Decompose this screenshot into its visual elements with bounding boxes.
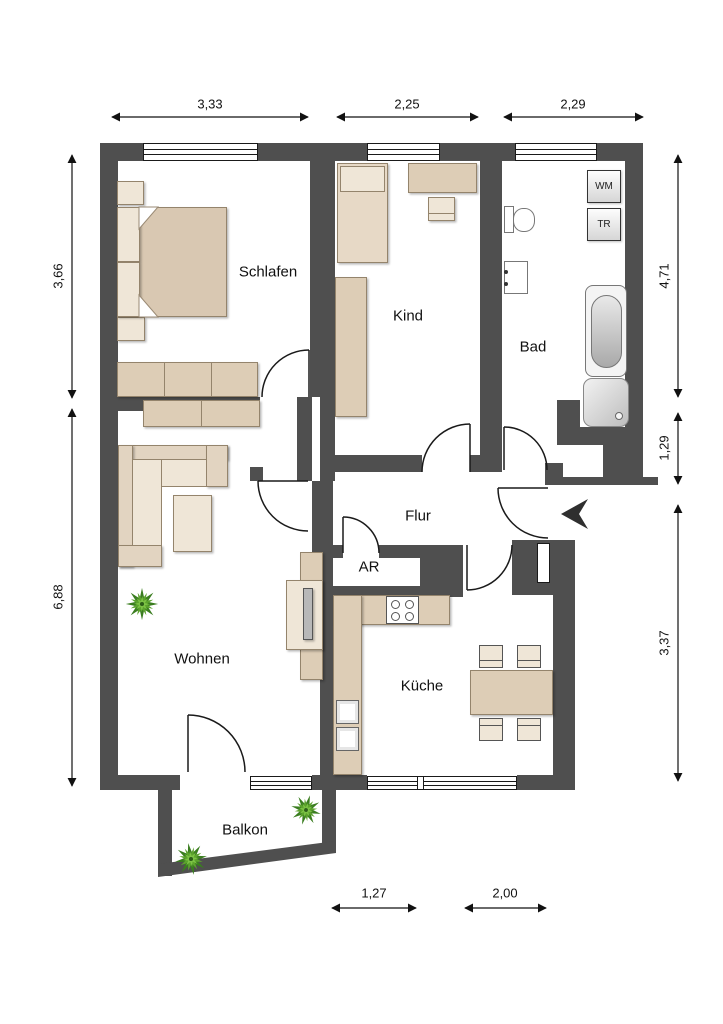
wall-segment	[603, 445, 643, 482]
wall-segment	[480, 161, 502, 472]
bathtub-basin	[591, 295, 622, 368]
wardrobe	[335, 277, 367, 417]
bed-pillow	[340, 166, 385, 192]
double-bed	[139, 207, 227, 317]
balcony-wall	[158, 790, 172, 876]
floor-plan: WM TR Schlafen Kind Bad Flur AR Wohnen K…	[0, 0, 723, 1024]
plant-icon	[172, 840, 209, 877]
stove	[386, 596, 419, 624]
wall-segment	[100, 161, 118, 790]
wall-segment	[557, 400, 580, 445]
window-mullion	[417, 776, 424, 790]
window-schlafen	[143, 143, 258, 161]
chair	[479, 645, 503, 668]
wardrobe-divider	[211, 363, 212, 396]
balcony-door-sill	[250, 776, 312, 790]
bathroom-sink	[504, 261, 528, 294]
dimension-label: 6,88	[51, 584, 66, 609]
window-kueche	[367, 776, 517, 790]
dryer: TR	[587, 208, 621, 241]
window-bad	[515, 143, 597, 161]
wall-segment	[545, 463, 563, 485]
door-wohnen	[258, 481, 308, 531]
plant-icon	[287, 791, 324, 828]
door-schlafen	[262, 350, 309, 397]
desk	[408, 163, 477, 193]
stove-burner	[391, 612, 400, 621]
stove-burner	[391, 600, 400, 609]
kitchen-sink	[336, 727, 359, 751]
room-label-wohnen: Wohnen	[174, 651, 230, 668]
plant-icon	[126, 588, 158, 620]
room-label-flur: Flur	[405, 508, 431, 525]
chair	[517, 645, 541, 668]
dining-table	[470, 670, 553, 715]
kitchen-sink	[336, 700, 359, 724]
bed-pillow	[117, 262, 140, 317]
room-label-kind: Kind	[393, 308, 423, 325]
desk-chair	[428, 197, 455, 221]
door-kind	[422, 424, 470, 472]
dimension-label: 2,29	[560, 97, 585, 112]
wall-segment	[333, 545, 343, 558]
nightstand	[117, 181, 144, 205]
wall-segment	[335, 455, 422, 472]
wall-segment	[470, 455, 502, 472]
chair-back	[429, 213, 454, 214]
stove-burner	[405, 600, 414, 609]
nightstand	[117, 317, 145, 341]
tv-screen	[303, 588, 313, 640]
wall-segment	[250, 467, 263, 481]
dimension-label: 4,71	[657, 263, 672, 288]
window-kind	[367, 143, 440, 161]
room-label-bad: Bad	[520, 339, 547, 356]
toilet-bowl	[513, 208, 535, 232]
dimension-label: 2,00	[492, 886, 517, 901]
washing-machine: WM	[587, 170, 621, 203]
wall-segment	[580, 427, 643, 445]
dimension-label: 3,66	[51, 263, 66, 288]
dimension-label: 3,37	[657, 630, 672, 655]
shower-drain	[615, 412, 623, 420]
door-ar	[343, 517, 379, 553]
wall-segment	[100, 775, 180, 790]
wall-segment	[310, 161, 335, 397]
wall-segment	[312, 775, 367, 790]
entrance-sidelight	[537, 543, 550, 583]
bed-pillow	[117, 207, 140, 262]
faucet-dot	[504, 282, 508, 286]
faucet-dot	[504, 270, 508, 274]
chair	[479, 718, 503, 741]
balcony-wall	[322, 790, 336, 852]
door-bad	[504, 427, 547, 470]
balcony-slanted-wall	[158, 841, 336, 877]
stove-burner	[405, 612, 414, 621]
door-balkon	[188, 715, 245, 772]
wall-segment	[553, 595, 575, 775]
dimension-label: 3,33	[197, 97, 222, 112]
wardrobe-divider	[164, 363, 165, 396]
wall-segment	[320, 397, 335, 481]
door-entrance	[498, 488, 548, 538]
dimension-label: 2,25	[394, 97, 419, 112]
room-label-balkon: Balkon	[222, 822, 268, 839]
entrance-arrow-icon	[561, 499, 588, 529]
dimension-label: 1,29	[657, 435, 672, 460]
sideboard-divider	[201, 401, 202, 426]
chair	[517, 718, 541, 741]
sofa-seat	[132, 459, 162, 546]
dryer-label: TR	[597, 219, 610, 230]
dimension-label: 1,27	[361, 886, 386, 901]
door-kueche	[467, 545, 512, 590]
wardrobe	[117, 362, 258, 397]
washing-machine-label: WM	[595, 181, 613, 192]
room-label-schlafen: Schlafen	[239, 264, 297, 281]
sofa-armrest	[206, 445, 228, 487]
wall-segment	[297, 397, 312, 481]
wall-segment	[517, 775, 575, 790]
room-label-kueche: Küche	[401, 678, 444, 695]
sofa-armrest	[118, 545, 162, 567]
room-label-ar: AR	[359, 559, 380, 576]
coffee-table	[173, 495, 212, 552]
shower-tray	[583, 378, 629, 427]
